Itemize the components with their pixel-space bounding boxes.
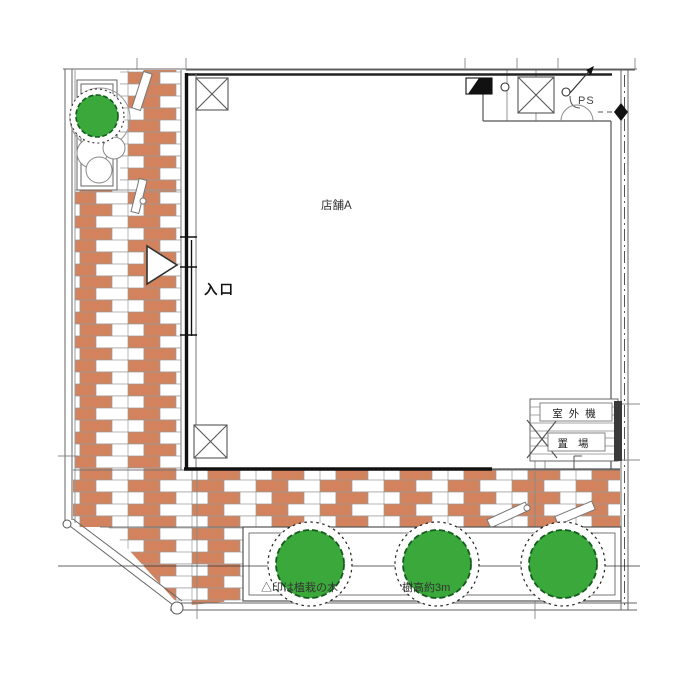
tree-icon [521, 522, 605, 606]
wheel-stopper [131, 72, 595, 528]
column-icon [196, 78, 228, 110]
site-plan-drawing [0, 0, 700, 700]
tree-icon [395, 522, 479, 606]
column-icon [518, 77, 554, 113]
storefront-glazing [180, 237, 197, 336]
outdoor-unit-area [527, 399, 622, 469]
site-plan-screenshot: 店舗A 入口 PS 室外機 置場 △印は植栽の木 樹高約3m [0, 0, 700, 700]
tree-icon [70, 89, 124, 143]
diamond-marker-icon [614, 103, 628, 121]
tree-icon [268, 522, 352, 606]
column-icon [194, 425, 227, 458]
brick-paving [73, 70, 620, 606]
